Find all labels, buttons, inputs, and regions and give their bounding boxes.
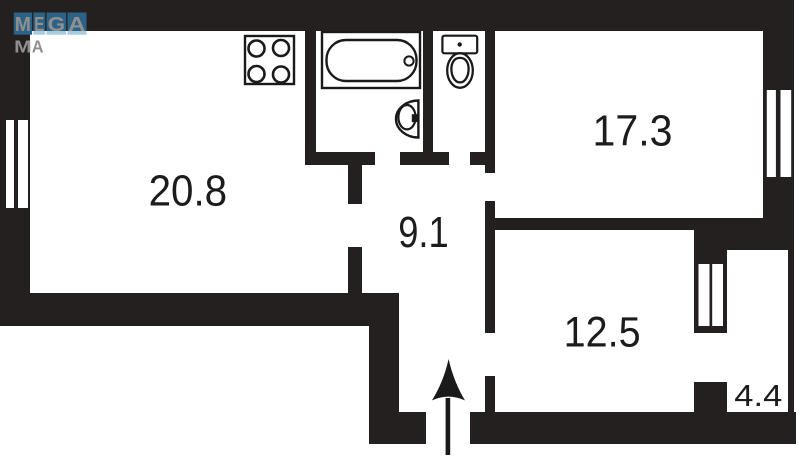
svg-text:A: A: [32, 36, 44, 56]
svg-text:E: E: [34, 13, 44, 36]
svg-text:9.1: 9.1: [398, 208, 449, 257]
svg-text:M: M: [15, 13, 31, 36]
svg-text:12.5: 12.5: [564, 310, 641, 357]
svg-text:A: A: [68, 13, 86, 36]
svg-text:20.8: 20.8: [149, 167, 228, 216]
svg-text:17.3: 17.3: [593, 107, 673, 156]
svg-text:M: M: [14, 36, 32, 56]
svg-text:4.4: 4.4: [734, 379, 782, 413]
svg-text:G: G: [48, 13, 66, 36]
